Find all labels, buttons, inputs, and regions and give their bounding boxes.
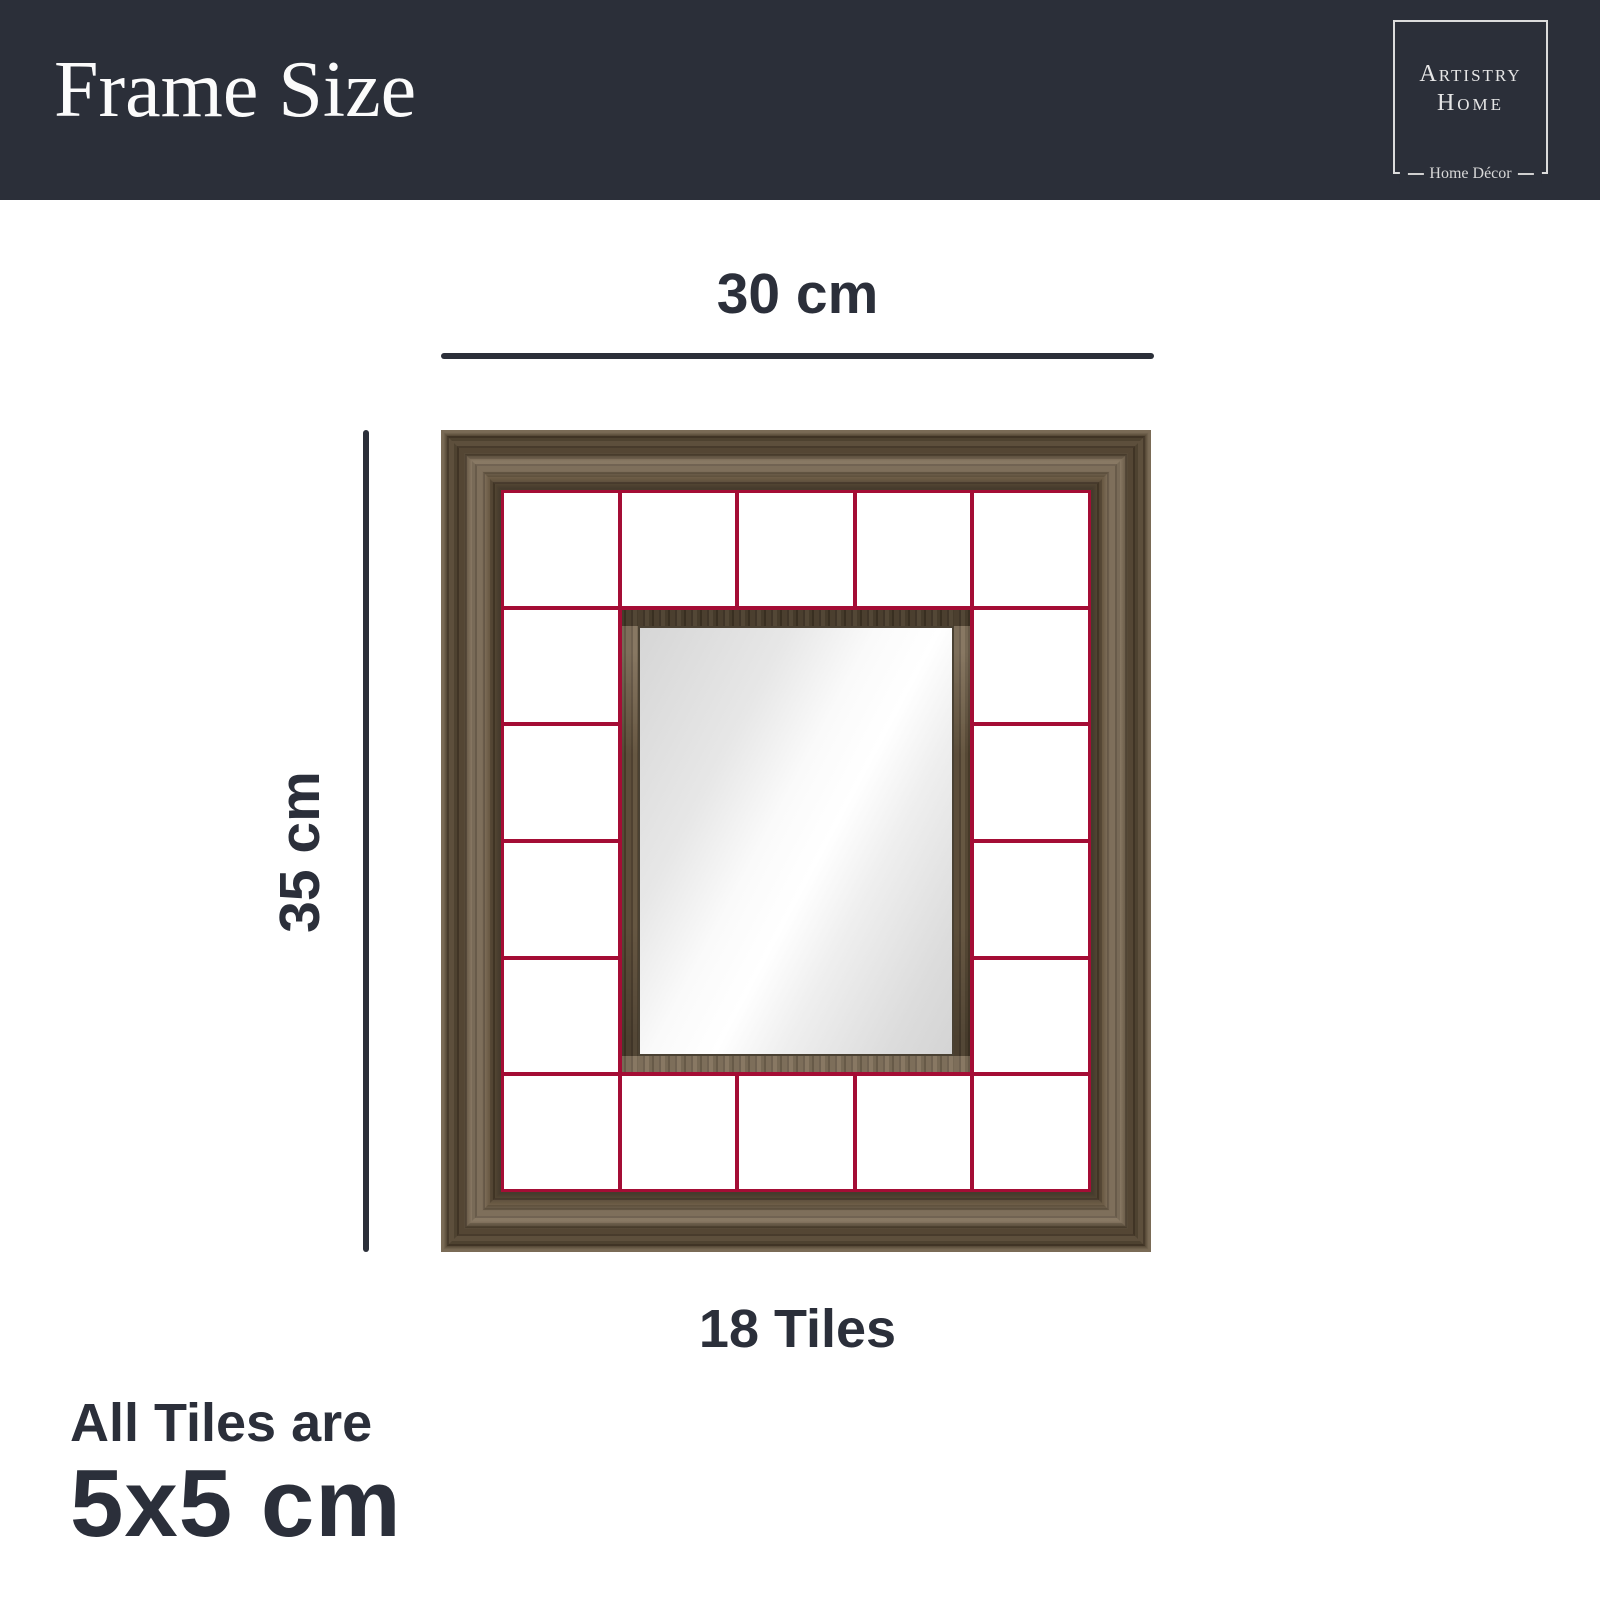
frame-rail-top <box>441 430 1151 490</box>
tile <box>974 1076 1088 1189</box>
tile <box>504 1076 618 1189</box>
tile-size-note-line2: 5x5 cm <box>70 1454 402 1554</box>
brand-tagline: Home Décor <box>1399 165 1541 183</box>
tile <box>974 610 1088 723</box>
tile-grid <box>501 490 1091 1192</box>
frame-rail-left <box>441 430 501 1252</box>
tile <box>857 1076 971 1189</box>
frame-rail-bottom <box>441 1192 1151 1252</box>
tile <box>504 843 618 956</box>
brand-tagline-text: Home Décor <box>1429 165 1511 183</box>
tile-count-label: 18 Tiles <box>441 1300 1154 1358</box>
tile <box>739 493 853 606</box>
height-dimension-line <box>363 430 369 1252</box>
height-dimension-label: 35 cm <box>270 702 330 1002</box>
infographic-canvas: Frame Size Artistry Home Home Décor 30 c… <box>0 0 1600 1600</box>
tile <box>622 1076 736 1189</box>
tile <box>974 726 1088 839</box>
width-dimension-line <box>441 353 1154 359</box>
brand-name-line1: Artistry <box>1395 60 1546 88</box>
tagline-dash-left <box>1407 173 1423 175</box>
tile <box>857 493 971 606</box>
tile <box>739 1076 853 1189</box>
tile <box>504 960 618 1073</box>
tile <box>504 726 618 839</box>
brand-name-line2: Home <box>1395 88 1546 118</box>
tile <box>504 493 618 606</box>
tile <box>974 960 1088 1073</box>
header-bar: Frame Size Artistry Home Home Décor <box>0 0 1600 200</box>
brand-logo: Artistry Home Home Décor <box>1393 20 1548 174</box>
tile <box>622 493 736 606</box>
tagline-dash-right <box>1518 173 1534 175</box>
frame-rail-right <box>1091 430 1151 1252</box>
mirror <box>622 610 971 1073</box>
tile <box>974 493 1088 606</box>
tile <box>504 610 618 723</box>
tile-size-note: All Tiles are 5x5 cm <box>70 1392 402 1554</box>
mirror-glass <box>638 626 955 1057</box>
mirror-frame <box>441 430 1151 1252</box>
tile <box>974 843 1088 956</box>
tile-size-note-line1: All Tiles are <box>70 1392 402 1454</box>
width-dimension-label: 30 cm <box>441 264 1154 324</box>
page-title: Frame Size <box>54 50 416 130</box>
